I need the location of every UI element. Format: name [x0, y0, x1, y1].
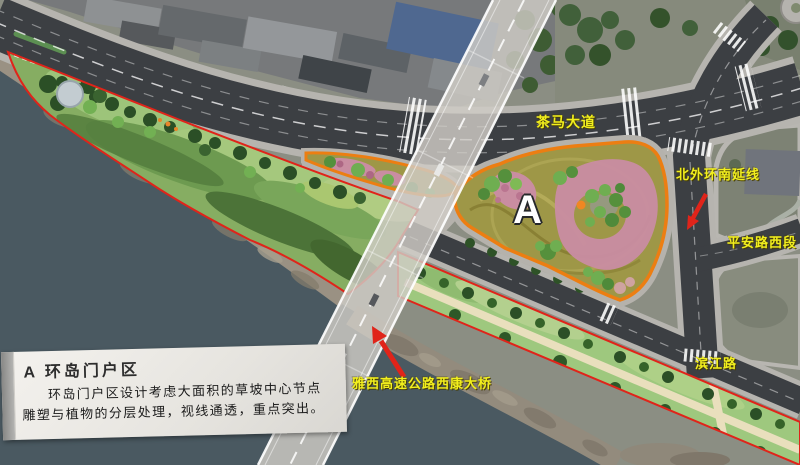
info-box-body: 环岛门户区设计考虑大面积的草坡中心节点雕塑与植物的分层处理，视线通透，重点突出。: [22, 378, 335, 425]
label-chama-avenue: 茶马大道: [536, 112, 596, 132]
circular-plaza: [57, 81, 83, 107]
label-pingan-road-west: 平安路西段: [727, 232, 797, 251]
info-box: A 环岛门户区 环岛门户区设计考虑大面积的草坡中心节点雕塑与植物的分层处理，视线…: [1, 344, 347, 440]
label-beiwaihuan-extension: 北外环南延线: [676, 164, 760, 183]
sculpture-marker: [577, 201, 586, 210]
info-box-title: A 环岛门户区: [23, 351, 345, 383]
label-yaxi-expressway-bridge: 雅西高速公路西康大桥: [352, 373, 492, 392]
info-box-accent-bar: [1, 352, 16, 440]
site-plan-canvas: 茶马大道 北外环南延线 平安路西段 滨江路 雅西高速公路西康大桥 A A 环岛门…: [0, 0, 800, 465]
area-a-letter: A: [513, 188, 542, 233]
label-binjiang-road: 滨江路: [695, 353, 737, 372]
